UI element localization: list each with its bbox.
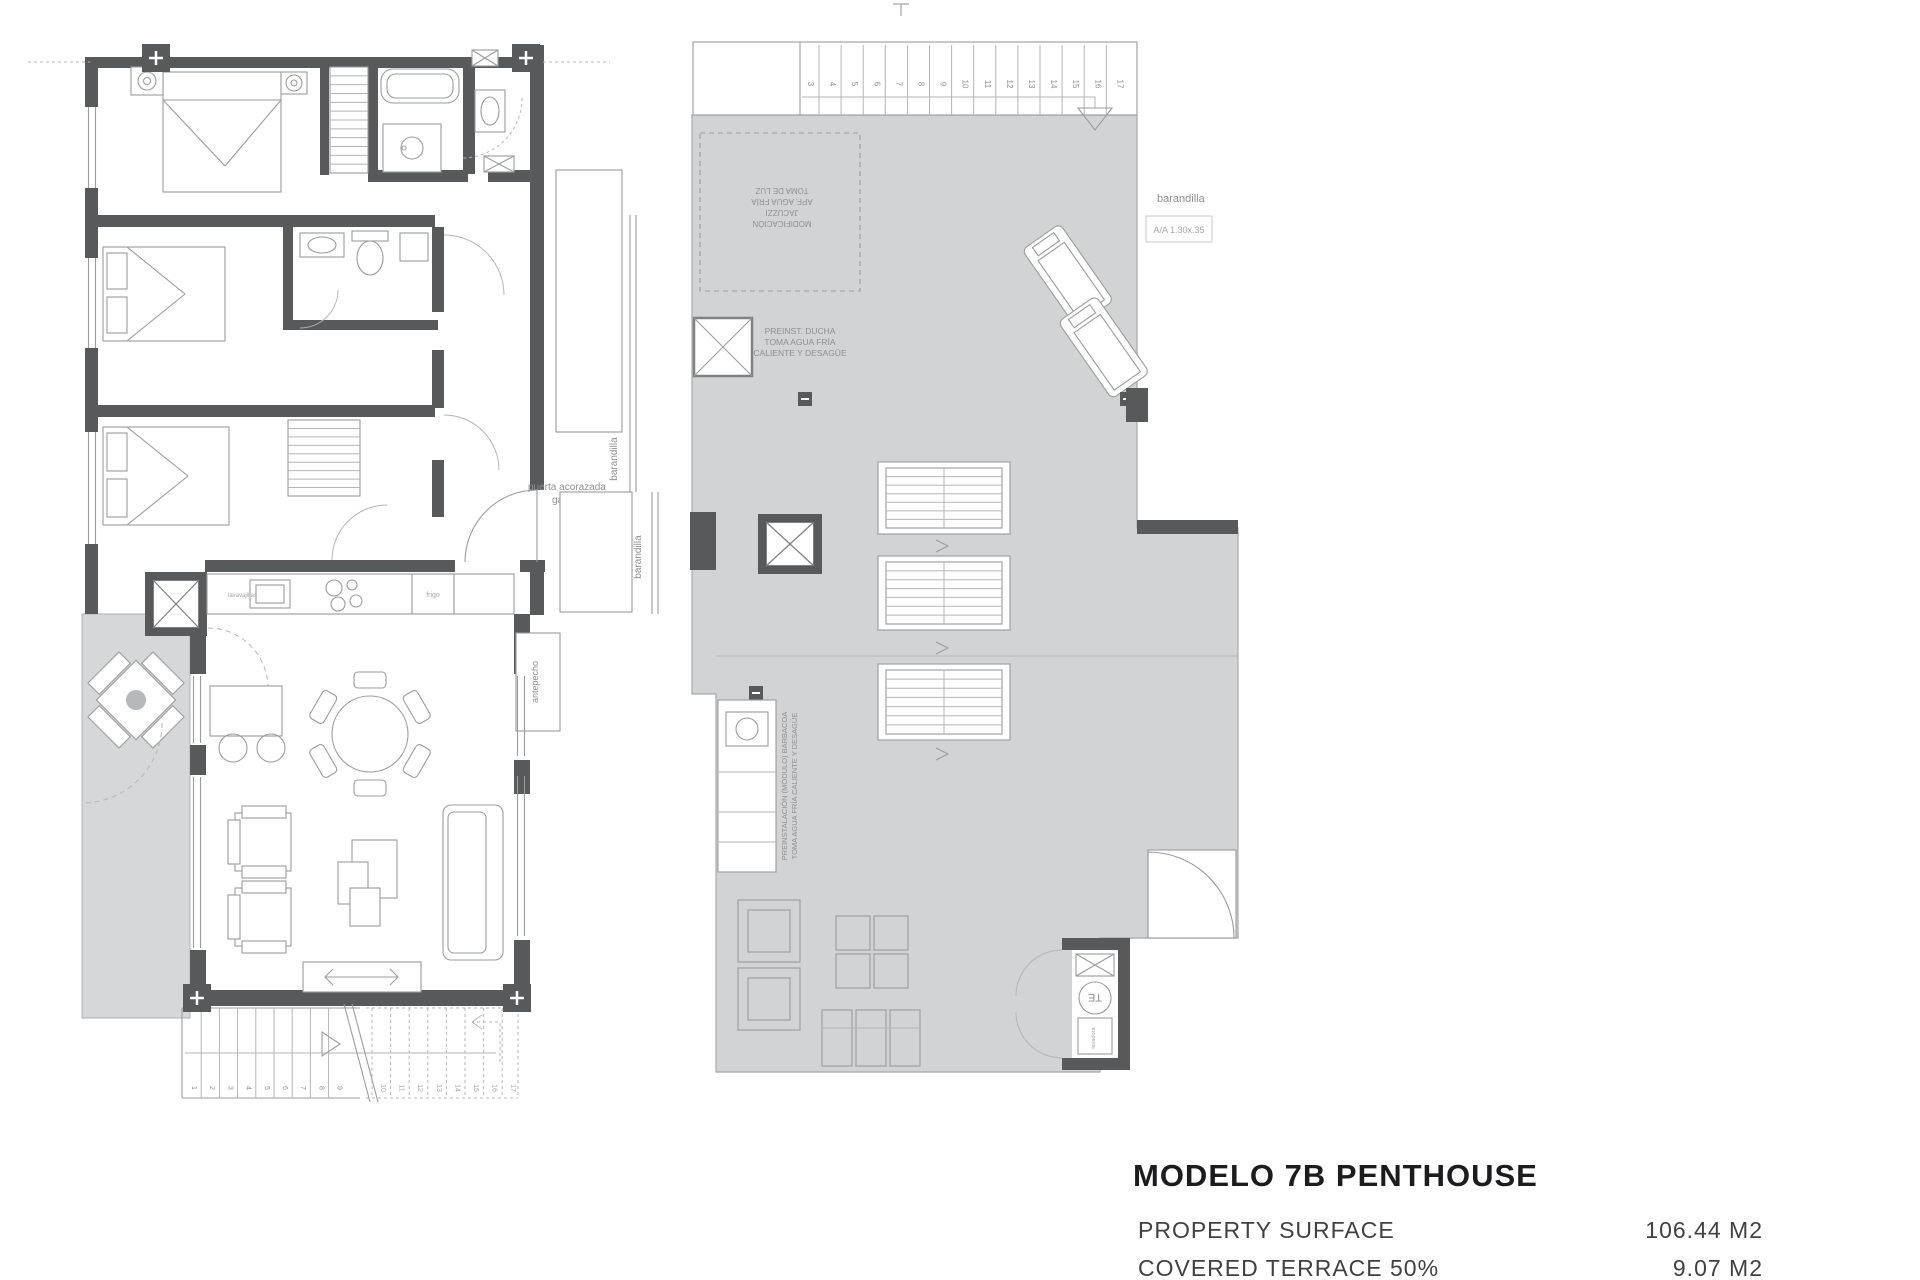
railing-label: barandilla <box>1157 193 1206 205</box>
modification-note-line: JACUZZI <box>766 208 799 217</box>
bathroom-2 <box>300 231 428 328</box>
svg-text:17: 17 <box>1115 80 1124 89</box>
side-panel-label: antepecho <box>530 661 540 703</box>
svg-text:16: 16 <box>1093 80 1102 89</box>
svg-text:16: 16 <box>491 1084 498 1092</box>
svg-text:1: 1 <box>190 1086 197 1090</box>
ac-unit-label: A/A 1.30x.35 <box>1153 225 1204 235</box>
dining-area <box>308 672 431 796</box>
svg-text:17: 17 <box>509 1084 516 1092</box>
svg-text:6: 6 <box>872 82 881 87</box>
svg-text:12: 12 <box>416 1084 423 1092</box>
armchair <box>228 806 291 878</box>
svg-text:15: 15 <box>472 1084 479 1092</box>
svg-text:8: 8 <box>917 82 926 87</box>
svg-text:6: 6 <box>281 1086 288 1090</box>
svg-text:9: 9 <box>939 82 948 87</box>
svg-text:11: 11 <box>983 80 992 89</box>
modification-note-line: APF. AGUA FRÍA <box>751 197 813 206</box>
dishwasher-label: lavavajillas <box>228 593 257 599</box>
svg-text:12: 12 <box>1005 80 1014 89</box>
armchair <box>228 881 291 953</box>
covered-terrace-value: 9.07 M2 <box>1673 1255 1763 1280</box>
svg-text:15: 15 <box>1071 80 1080 89</box>
lower-stairs: 123456789 1011121314151617 <box>182 1004 518 1102</box>
svg-text:2: 2 <box>208 1086 215 1090</box>
plan-title: MODELO 7B PENTHOUSE <box>1133 1158 1538 1193</box>
dividing-wall <box>1137 520 1238 534</box>
sofa <box>443 805 503 960</box>
deck-access-door <box>1148 850 1236 938</box>
svg-text:14: 14 <box>453 1084 460 1092</box>
svg-text:13: 13 <box>435 1084 442 1092</box>
washer-label: lavadora <box>1091 1027 1097 1049</box>
wc-sink <box>475 90 505 132</box>
svg-text:10: 10 <box>961 80 970 89</box>
bedroom-2 <box>103 247 225 341</box>
property-surface-value: 106.44 M2 <box>1645 1217 1763 1243</box>
master-bed <box>163 72 281 192</box>
barbecue-module: PREINSTALACIÓN (MÓDULO) BARBACOA TOMA AG… <box>718 700 799 872</box>
covered-terrace-label: COVERED TERRACE 50% <box>1138 1255 1439 1280</box>
svg-text:9: 9 <box>336 1086 343 1090</box>
svg-text:13: 13 <box>1027 80 1036 89</box>
railing-label-lower: barandilla <box>633 535 644 579</box>
svg-text:5: 5 <box>850 82 859 87</box>
elevator-lower-icon <box>145 572 207 636</box>
svg-text:7: 7 <box>894 82 903 87</box>
lower-floor-plan: puerta acorazada gardesa barandilla bara… <box>28 44 658 1102</box>
svg-text:11: 11 <box>398 1084 405 1091</box>
svg-text:3: 3 <box>806 82 815 87</box>
lower-terrace <box>71 614 201 1018</box>
living-room <box>228 805 503 992</box>
shower-note-line: CALIENTE Y DESAGÜE <box>753 348 847 358</box>
bathroom-1 <box>381 50 522 172</box>
svg-text:8: 8 <box>317 1086 324 1090</box>
shower-note-line: PREINST. DUCHA <box>765 326 836 336</box>
svg-text:4: 4 <box>245 1086 252 1090</box>
wall-stub <box>1126 388 1148 422</box>
svg-text:3: 3 <box>226 1086 233 1090</box>
tv-bench <box>303 962 421 992</box>
pergola-slats <box>878 462 1010 740</box>
coffee-tables <box>338 840 397 926</box>
floor-plan-sheet: puerta acorazada gardesa barandilla bara… <box>0 0 1920 1280</box>
modification-note-line: TOMA DE LUZ <box>755 186 808 195</box>
svg-text:10: 10 <box>379 1084 386 1092</box>
dining-table <box>332 696 408 772</box>
modification-note-line: MODIFICACIÓN <box>752 219 811 228</box>
vanity <box>383 124 441 172</box>
barbecue-note-line: TOMA AGUA FRÍA CALIENTE Y DESAGÜE <box>790 713 799 860</box>
barbecue-note-line: PREINSTALACIÓN (MÓDULO) BARBACOA <box>780 712 789 861</box>
water-heater-label: TE <box>1088 991 1102 1003</box>
kitchen-island <box>210 686 282 736</box>
svg-text:14: 14 <box>1049 80 1058 89</box>
hall-doors <box>444 235 504 470</box>
entrance-door-label-1: puerta acorazada <box>528 482 606 493</box>
svg-text:7: 7 <box>299 1086 306 1090</box>
master-bedroom <box>131 67 307 192</box>
shower <box>400 233 428 261</box>
title-block: MODELO 7B PENTHOUSE PROPERTY SURFACE 106… <box>1133 1158 1763 1280</box>
svg-text:5: 5 <box>263 1086 270 1090</box>
sheet-mark <box>893 4 909 16</box>
shower-note-line: TOMA AGUA FRÍA <box>764 337 835 347</box>
toilet <box>357 241 383 275</box>
floor-plan-drawing: puerta acorazada gardesa barandilla bara… <box>0 0 1920 1280</box>
railing-label-upper: barandilla <box>609 437 620 481</box>
upper-floor-plan: 34567891011121314151617 MODIFICACIÓN JAC… <box>690 42 1238 1072</box>
property-surface-label: PROPERTY SURFACE <box>1138 1217 1395 1243</box>
svg-text:4: 4 <box>828 82 837 87</box>
fridge-label: frigo <box>426 592 440 599</box>
